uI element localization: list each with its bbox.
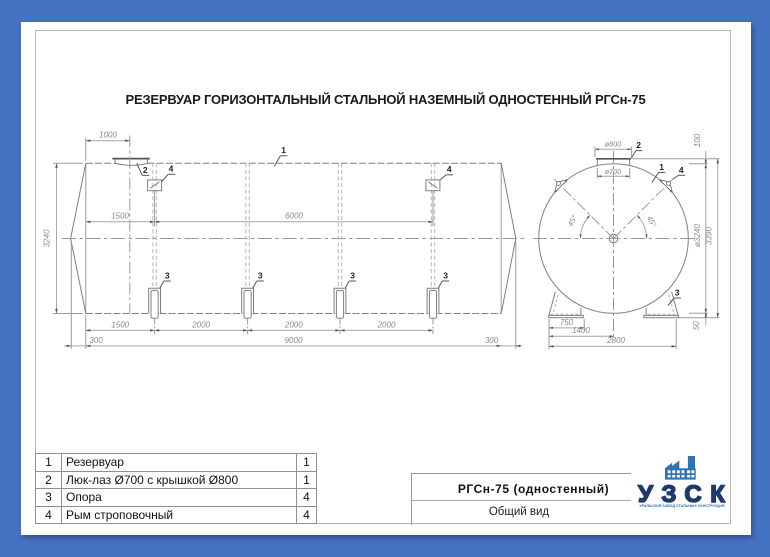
svg-text:1500: 1500: [111, 212, 129, 221]
svg-text:1500: 1500: [111, 320, 129, 329]
svg-text:3390: 3390: [705, 227, 714, 245]
svg-text:4: 4: [169, 164, 174, 174]
svg-text:2: 2: [636, 140, 641, 150]
svg-text:45°: 45°: [645, 214, 658, 228]
svg-text:4: 4: [447, 164, 452, 174]
svg-text:4: 4: [679, 165, 684, 175]
svg-text:1400: 1400: [572, 326, 590, 335]
svg-text:ø3240: ø3240: [693, 224, 702, 247]
svg-text:2800: 2800: [606, 336, 625, 345]
svg-text:ø700: ø700: [605, 167, 621, 176]
svg-text:45°: 45°: [566, 214, 579, 228]
svg-text:2000: 2000: [284, 320, 303, 329]
svg-text:1: 1: [281, 145, 286, 155]
svg-text:100: 100: [693, 133, 702, 147]
svg-text:50: 50: [692, 321, 701, 330]
svg-text:2: 2: [143, 165, 148, 175]
svg-text:300: 300: [485, 336, 499, 345]
svg-text:ø800: ø800: [605, 140, 621, 149]
svg-text:3240: 3240: [43, 229, 52, 247]
svg-text:3: 3: [443, 271, 448, 281]
svg-text:300: 300: [89, 336, 103, 345]
svg-text:1: 1: [659, 162, 664, 172]
svg-text:9000: 9000: [285, 336, 303, 345]
svg-text:3: 3: [165, 271, 170, 281]
svg-text:3: 3: [258, 271, 263, 281]
svg-text:3: 3: [675, 288, 680, 298]
svg-text:2000: 2000: [191, 320, 210, 329]
svg-text:6000: 6000: [285, 212, 303, 221]
svg-text:3: 3: [350, 271, 355, 281]
svg-text:1000: 1000: [99, 131, 117, 140]
svg-text:2000: 2000: [377, 320, 396, 329]
